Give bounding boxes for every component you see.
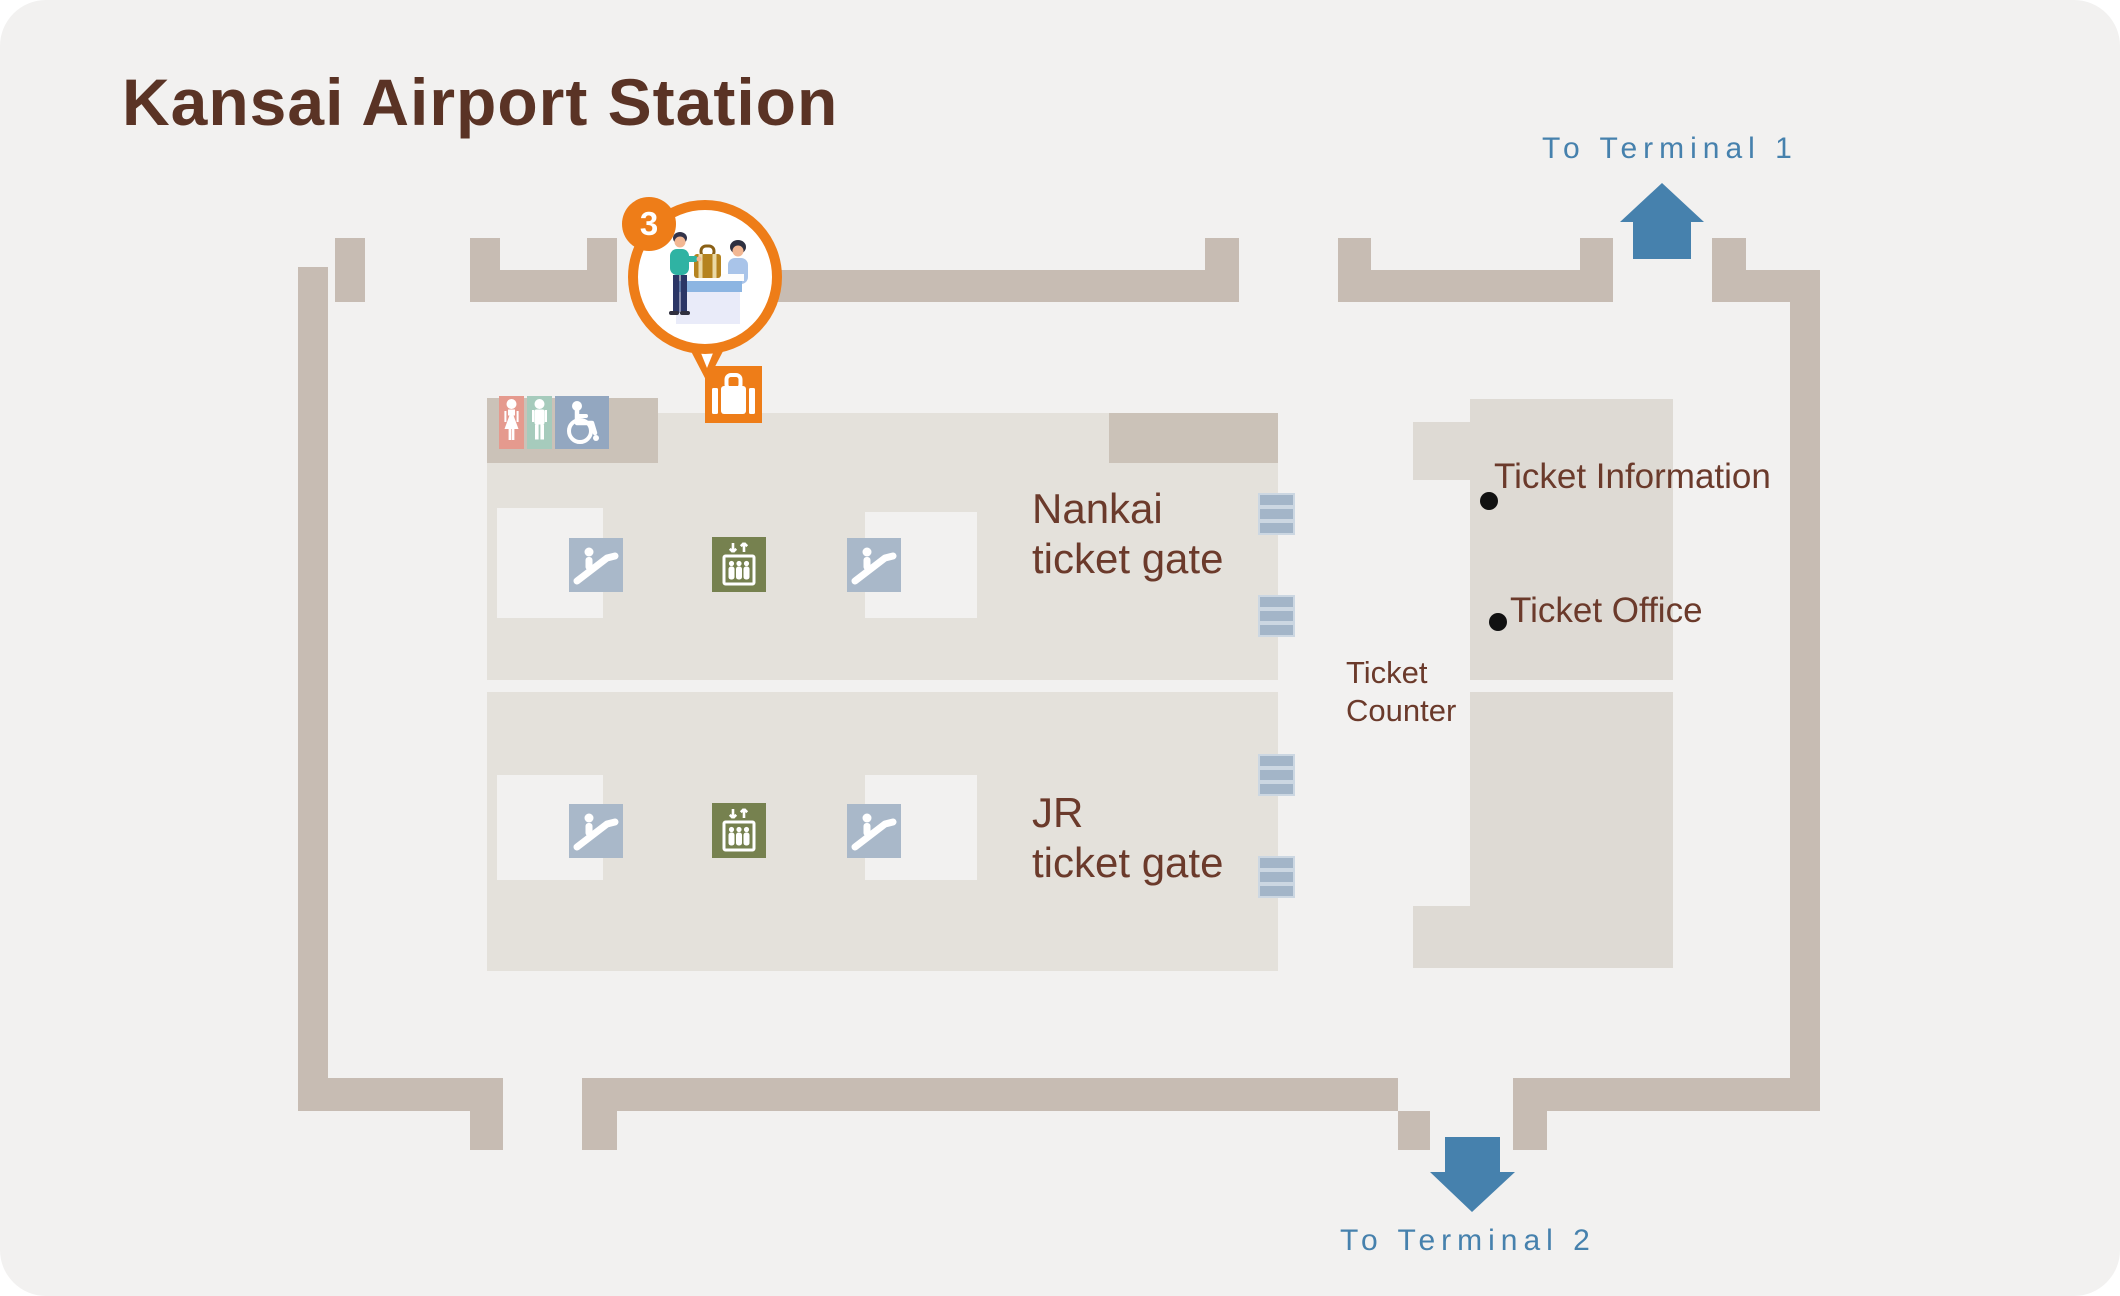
elevator-icon — [712, 537, 766, 592]
men-restroom-icon — [527, 396, 552, 449]
escalator-icon — [569, 538, 623, 592]
wall-post — [1712, 238, 1746, 302]
to-terminal-1-label: To Terminal 1 — [1542, 132, 1798, 166]
ticket-office-label: Ticket Office — [1510, 590, 1703, 632]
wall-top-segment — [470, 270, 617, 302]
wall-left — [298, 267, 328, 1111]
page-title: Kansai Airport Station — [122, 64, 838, 140]
to-terminal-2-label: To Terminal 2 — [1340, 1224, 1596, 1258]
ticket-counter-notch — [1413, 422, 1470, 480]
escalator-icon — [569, 804, 623, 858]
nankai-gate-bars — [1260, 597, 1293, 635]
jr-gate-label-line1: JR — [1032, 788, 1223, 838]
jr-gate-bars — [1260, 858, 1293, 896]
nankai-gate-label: Nankai ticket gate — [1032, 484, 1223, 584]
wall-post — [1513, 1111, 1547, 1150]
step-badge: 3 — [622, 197, 676, 251]
wall-post — [470, 1111, 503, 1150]
wall-bottom-segment — [1513, 1078, 1820, 1111]
terminal-2-arrow-icon — [1430, 1137, 1515, 1212]
jr-gate-bars — [1260, 756, 1293, 794]
wall-bottom-segment — [582, 1078, 1398, 1111]
ticket-counter-notch — [1413, 906, 1470, 968]
ticket-office-dot — [1489, 613, 1507, 631]
wall-bottom-segment — [328, 1078, 503, 1111]
jr-gate-label: JR ticket gate — [1032, 788, 1223, 888]
ticket-counter-upper — [1470, 399, 1673, 680]
escalator-icon — [847, 804, 901, 858]
wall-post — [1398, 1111, 1430, 1150]
nankai-gate-label-line1: Nankai — [1032, 484, 1223, 534]
wall-right — [1790, 302, 1820, 1111]
wheelchair-accessible-icon — [555, 396, 609, 449]
wall-post — [1580, 238, 1613, 270]
ticket-counter-label: Ticket Counter — [1346, 654, 1456, 730]
wall-top-segment — [1338, 270, 1613, 302]
nankai-gate-label-line2: ticket gate — [1032, 534, 1223, 584]
wall-top-left-post — [335, 238, 365, 302]
jr-gate-label-line2: ticket gate — [1032, 838, 1223, 888]
dark-block — [1109, 413, 1278, 463]
station-map: Kansai Airport Station — [0, 0, 2120, 1296]
ticket-information-label: Ticket Information — [1494, 456, 1771, 498]
elevator-icon — [712, 803, 766, 858]
wall-post — [582, 1111, 617, 1150]
ticket-counter-lower — [1470, 692, 1673, 968]
wall-post — [1205, 238, 1239, 270]
escalator-icon — [847, 538, 901, 592]
wall-top-segment — [1746, 270, 1820, 302]
wall-top-segment — [742, 270, 1239, 302]
ticket-counter-label-line1: Ticket — [1346, 654, 1456, 692]
nankai-gate-bars — [1260, 495, 1293, 533]
terminal-1-arrow-icon — [1620, 183, 1704, 259]
ticket-counter-label-line2: Counter — [1346, 692, 1456, 730]
women-restroom-icon — [499, 396, 524, 449]
wall-post — [1338, 238, 1371, 270]
